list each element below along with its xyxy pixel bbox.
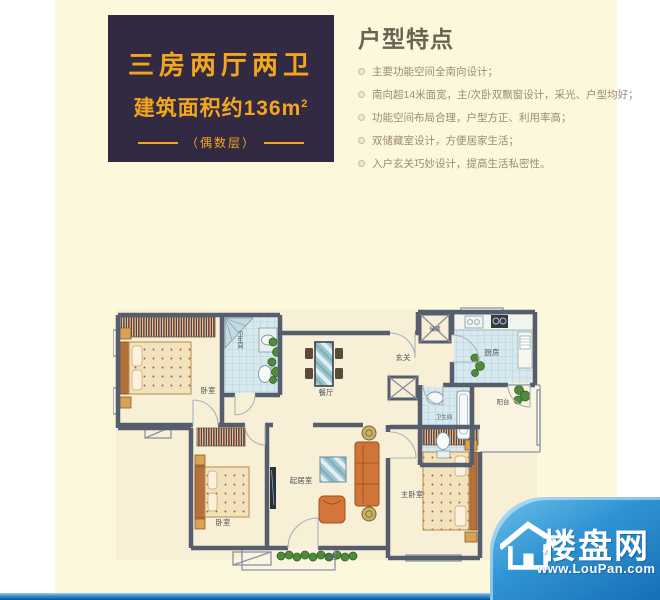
floor-parity-text: （偶数层） [186,134,256,151]
feature-item: 南向超14米面宽，主/次卧双飘窗设计，采光、户型均好； [358,89,614,101]
feature-item: 主要功能空间全南向设计； [358,66,614,78]
layout-title: 三房两厅两卫 [108,45,334,82]
feature-item: 双储藏室设计，方便居家生活； [358,135,614,147]
brand-url: www.LouPan.com [537,561,655,576]
feature-item: 入户玄关巧妙设计，提高生活私密性。 [358,158,614,170]
brand-logo: 楼盘网 www.LouPan.com [490,497,660,600]
storage-2-box [389,377,417,399]
room-label-bathroom-1: 卫生间 [236,331,243,350]
feature-item: 功能空间布局合理，户型方正、利用率高； [358,112,614,124]
wardrobe-bedroom-2 [197,428,245,446]
area-value: 136m [244,97,302,120]
features-title: 户型特点 [358,20,614,54]
room-label-master: 主卧室 [401,489,424,499]
wardrobe-bedroom-1 [121,317,215,337]
room-label-storage: 储藏 [429,325,441,333]
room-label-balcony-bottom: 阳台 [325,552,338,561]
room-label-balcony-right: 阳台 [497,397,510,406]
features-list: 主要功能空间全南向设计； 南向超14米面宽，主/次卧双飘窗设计，采光、户型均好；… [358,66,614,170]
room-label-bathroom-2: 卫生间 [436,413,453,421]
area-superscript: 2 [301,98,308,110]
room-label-kitchen: 厨房 [485,347,500,357]
floorplan-drawing: 卧室 卫生间 餐厅 玄关 储藏 厨房 阳台 卫生间 起居室 卧室 主卧室 阳台 [113,300,547,592]
area-prefix: 建筑面积约 [134,97,244,120]
floorplan-flyer: 三房两厅两卫 建筑面积约136m2 （偶数层） 户型特点 主要功能空间全南向设计… [0,0,660,600]
room-label-dining: 餐厅 [319,388,334,397]
area-text: 建筑面积约136m2 [108,92,334,122]
features-panel: 户型特点 主要功能空间全南向设计； 南向超14米面宽，主/次卧双飘窗设计，采光、… [358,20,614,181]
room-label-hall: 玄关 [396,352,411,362]
spec-box: 三房两厅两卫 建筑面积约136m2 （偶数层） [108,15,334,162]
floor-parity: （偶数层） [108,134,334,151]
room-label-bedroom-2: 卧室 [216,517,231,527]
left-dash [138,142,178,144]
room-label-living: 起居室 [290,475,313,485]
right-dash [264,142,304,144]
room-label-bedroom-1: 卧室 [201,385,216,395]
